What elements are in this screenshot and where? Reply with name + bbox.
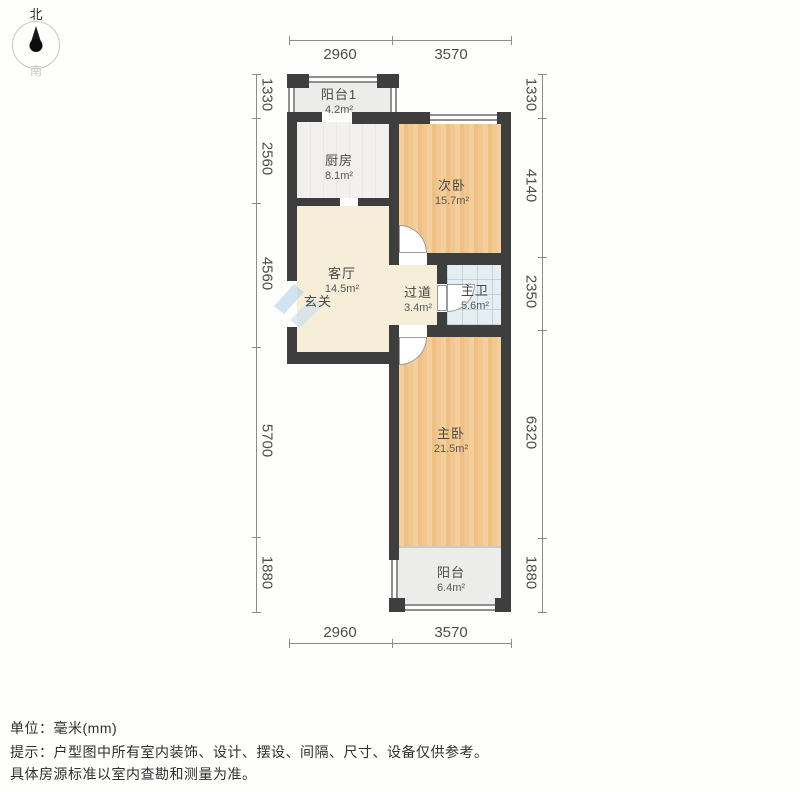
- dimension-line-top: [289, 40, 511, 41]
- dim-right-4: 6320: [523, 403, 540, 463]
- wall: [389, 112, 399, 253]
- dimension-tick: [538, 257, 547, 258]
- dimension-tick: [511, 639, 512, 648]
- wall: [389, 253, 399, 265]
- dimension-tick: [252, 118, 261, 119]
- dimension-line-right: [542, 74, 543, 612]
- dimension-tick: [289, 36, 290, 45]
- footer-unit-line: 单位：毫米(mm): [10, 718, 117, 738]
- dim-right-5: 1880: [523, 543, 540, 603]
- room-name: 主卧: [406, 423, 496, 442]
- compass: 北 南: [6, 4, 66, 79]
- wall: [389, 598, 405, 612]
- room-area: 15.7m²: [407, 195, 497, 207]
- wall: [501, 112, 511, 612]
- dimension-tick: [252, 74, 261, 75]
- room-label-balcony1: 阳台1 4.2m²: [294, 84, 384, 116]
- room-name: 阳台1: [294, 84, 384, 103]
- window: [309, 76, 377, 83]
- dimension-tick: [252, 203, 261, 204]
- wall: [427, 325, 511, 337]
- dimension-tick: [252, 612, 261, 613]
- dimension-tick: [392, 36, 393, 45]
- room-area: 6.4m²: [406, 582, 496, 594]
- room-name: 厨房: [294, 150, 384, 169]
- wall: [427, 253, 511, 265]
- dimension-tick: [289, 639, 290, 648]
- room-area: 4.2m²: [294, 104, 384, 116]
- dim-bottom-1: 2960: [310, 624, 370, 641]
- room-area: 8.1m²: [294, 170, 384, 182]
- wall: [287, 198, 340, 206]
- floorplan-page: 北 南 2960 3570 2960 3570 1330 2560 4560 5…: [0, 0, 800, 792]
- dimension-tick: [392, 639, 393, 648]
- window: [430, 114, 497, 121]
- room-label-kitchen: 厨房 8.1m²: [294, 150, 384, 182]
- window: [405, 604, 497, 611]
- room-label-balcony2: 阳台 6.4m²: [406, 562, 496, 594]
- room-name: 客厅: [297, 263, 387, 282]
- room-label-bathroom: 主卫 5.6m²: [430, 280, 520, 312]
- room-label-bedroom1: 主卧 21.5m²: [406, 423, 496, 455]
- dim-left-2: 2560: [259, 129, 276, 189]
- room-label-foyer: 玄关: [273, 291, 363, 310]
- dim-top-1: 2960: [310, 46, 370, 63]
- dimension-tick: [511, 36, 512, 45]
- window: [390, 88, 397, 114]
- room-name: 主卫: [430, 280, 520, 299]
- dim-left-1: 1330: [259, 65, 276, 125]
- footer-note-line1: 提示：户型图中所有室内装饰、设计、摆设、间隔、尺寸、设备仅供参考。: [10, 742, 489, 762]
- compass-circle: [12, 21, 60, 69]
- wall: [287, 352, 399, 364]
- dim-left-5: 1880: [259, 543, 276, 603]
- dimension-tick: [538, 330, 547, 331]
- footer-note-line2: 具体房源标准以室内查勘和测量为准。: [10, 764, 257, 784]
- dimension-tick: [538, 74, 547, 75]
- wall: [287, 112, 297, 281]
- wall: [389, 337, 399, 560]
- dimension-tick: [252, 537, 261, 538]
- room-name: 阳台: [406, 562, 496, 581]
- dimension-tick: [538, 612, 547, 613]
- dimension-tick: [252, 347, 261, 348]
- dimension-tick: [538, 118, 547, 119]
- dimension-tick: [538, 538, 547, 539]
- room-name: 次卧: [407, 175, 497, 194]
- dim-bottom-2: 3570: [421, 624, 481, 641]
- room-name: 玄关: [273, 291, 363, 310]
- dim-right-2: 4140: [523, 156, 540, 216]
- dim-top-2: 3570: [421, 46, 481, 63]
- dim-right-3: 2350: [523, 262, 540, 322]
- dim-left-4: 5700: [259, 411, 276, 471]
- wall: [389, 325, 399, 337]
- compass-needle-dot: [30, 39, 43, 52]
- room-area: 21.5m²: [406, 443, 496, 455]
- room-label-bedroom2: 次卧 15.7m²: [407, 175, 497, 207]
- dimension-line-left: [256, 74, 257, 612]
- dimension-line-bottom: [289, 643, 511, 644]
- dim-right-1: 1330: [523, 65, 540, 125]
- window: [391, 560, 398, 598]
- balcony-divider-line: [399, 546, 501, 548]
- room-area: 5.6m²: [430, 300, 520, 312]
